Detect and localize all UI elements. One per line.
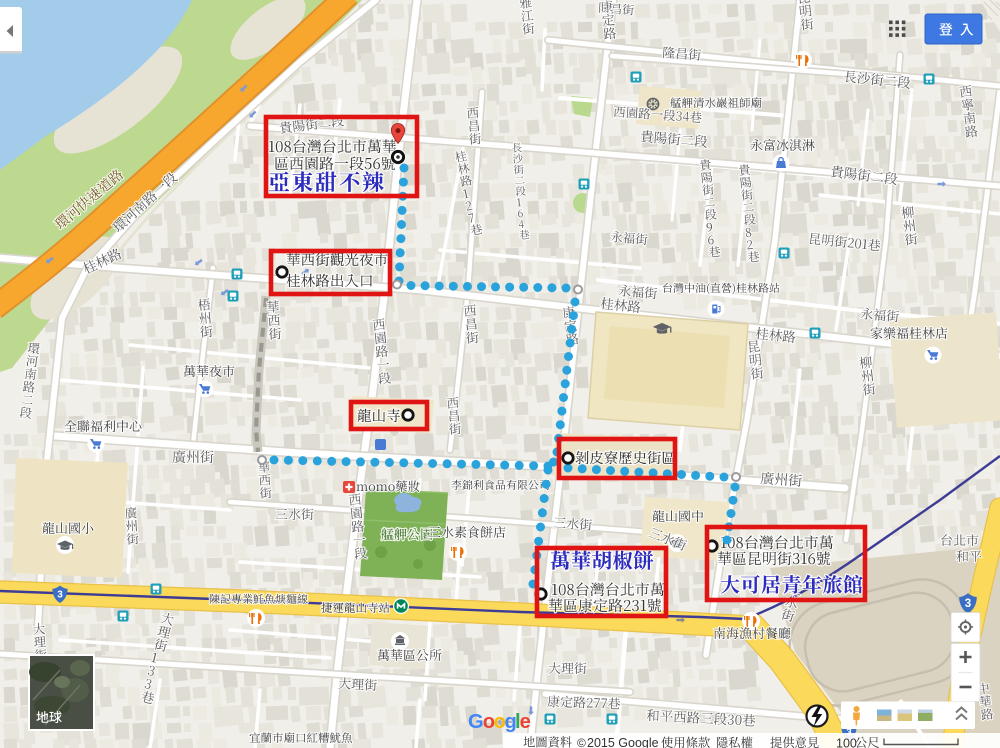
svg-text:G: G [468, 711, 484, 733]
svg-text:3: 3 [57, 589, 63, 600]
svg-text:3: 3 [965, 598, 971, 610]
svg-text:©: © [577, 736, 586, 748]
svg-text:e: e [520, 711, 531, 733]
svg-text:100: 100 [836, 737, 857, 748]
svg-text:2015 Google: 2015 Google [587, 736, 659, 748]
